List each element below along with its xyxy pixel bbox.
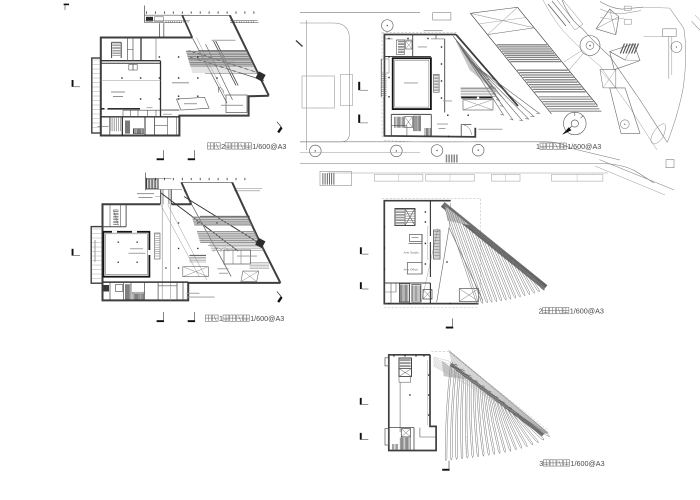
svg-text:1/600@A3: 1/600@A3 bbox=[567, 142, 601, 151]
svg-text:3: 3 bbox=[539, 459, 543, 468]
svg-text:Arts Office: Arts Office bbox=[404, 267, 419, 271]
svg-text:1: 1 bbox=[219, 314, 223, 323]
svg-text:1: 1 bbox=[536, 142, 540, 151]
svg-text:1/600@A3: 1/600@A3 bbox=[570, 307, 604, 316]
svg-text:2: 2 bbox=[221, 142, 225, 151]
svg-text:2: 2 bbox=[539, 307, 543, 316]
svg-text:1/600@A3: 1/600@A3 bbox=[571, 459, 605, 468]
svg-text:1/600@A3: 1/600@A3 bbox=[250, 314, 284, 323]
svg-text:Arts Studio: Arts Studio bbox=[404, 250, 419, 254]
svg-text:1/600@A3: 1/600@A3 bbox=[252, 142, 286, 151]
